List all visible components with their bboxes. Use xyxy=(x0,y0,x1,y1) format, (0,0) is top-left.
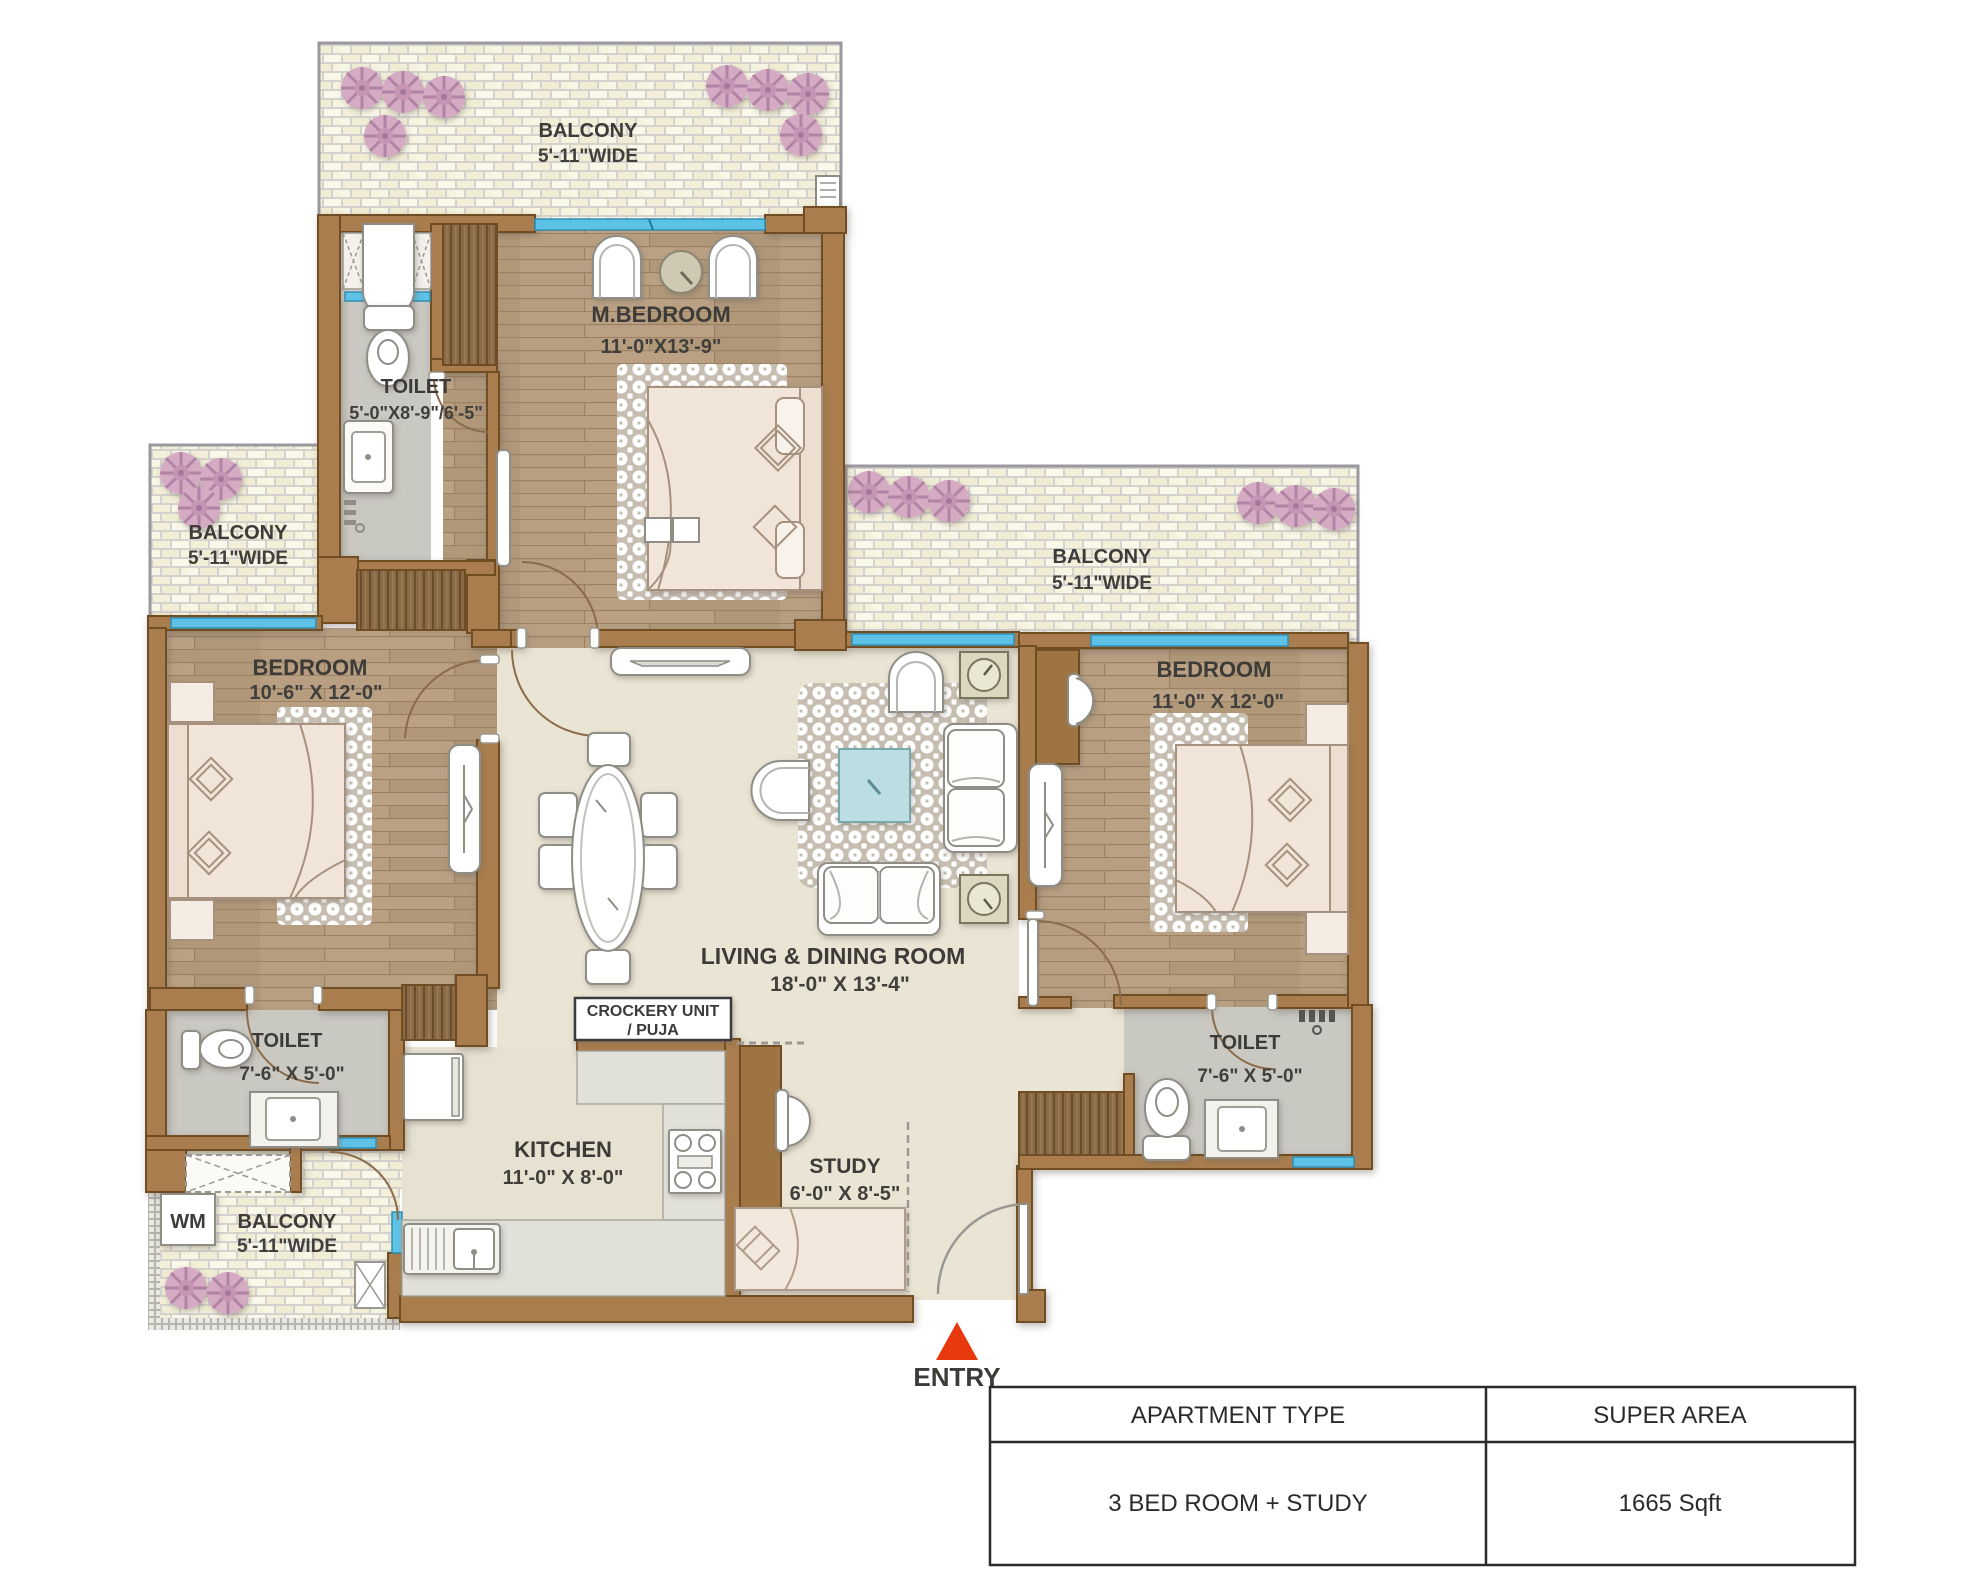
svg-text:BALCONY: BALCONY xyxy=(189,522,289,544)
svg-text:LIVING & DINING ROOM: LIVING & DINING ROOM xyxy=(701,943,966,969)
svg-text:BEDROOM: BEDROOM xyxy=(253,655,368,680)
svg-text:/ PUJA: / PUJA xyxy=(627,1022,679,1039)
svg-text:5'-0"X8'-9"/6'-5": 5'-0"X8'-9"/6'-5" xyxy=(349,403,483,423)
svg-text:APARTMENT TYPE: APARTMENT TYPE xyxy=(1131,1402,1345,1429)
svg-text:6'-0" X 8'-5": 6'-0" X 8'-5" xyxy=(790,1183,901,1205)
svg-text:CROCKERY UNIT: CROCKERY UNIT xyxy=(587,1003,720,1020)
svg-text:11'-0" X 12'-0": 11'-0" X 12'-0" xyxy=(1152,691,1284,713)
svg-text:5'-11"WIDE: 5'-11"WIDE xyxy=(237,1236,337,1257)
svg-text:TOILET: TOILET xyxy=(1210,1032,1281,1054)
svg-text:3 BED ROOM + STUDY: 3 BED ROOM + STUDY xyxy=(1108,1490,1367,1517)
svg-text:BALCONY: BALCONY xyxy=(1053,546,1153,568)
svg-text:10'-6" X 12'-0": 10'-6" X 12'-0" xyxy=(250,682,383,704)
svg-text:7'-6" X 5'-0": 7'-6" X 5'-0" xyxy=(239,1064,344,1085)
svg-text:TOILET: TOILET xyxy=(252,1030,323,1052)
svg-text:11'-0"X13'-9": 11'-0"X13'-9" xyxy=(601,336,722,358)
svg-text:M.BEDROOM: M.BEDROOM xyxy=(591,302,730,327)
svg-text:BALCONY: BALCONY xyxy=(539,120,639,142)
svg-text:WM: WM xyxy=(170,1211,206,1233)
svg-text:5'-11"WIDE: 5'-11"WIDE xyxy=(188,548,288,569)
svg-text:TOILET: TOILET xyxy=(381,376,452,398)
svg-text:SUPER AREA: SUPER AREA xyxy=(1593,1402,1746,1429)
svg-text:18'-0" X 13'-4": 18'-0" X 13'-4" xyxy=(770,973,910,996)
svg-text:5'-11"WIDE: 5'-11"WIDE xyxy=(1052,573,1152,594)
svg-text:BALCONY: BALCONY xyxy=(238,1211,338,1233)
svg-text:KITCHEN: KITCHEN xyxy=(514,1137,612,1162)
svg-text:1665 Sqft: 1665 Sqft xyxy=(1619,1490,1722,1517)
svg-text:5'-11"WIDE: 5'-11"WIDE xyxy=(538,146,638,167)
svg-text:11'-0" X 8'-0": 11'-0" X 8'-0" xyxy=(503,1167,624,1189)
svg-text:7'-6" X 5'-0": 7'-6" X 5'-0" xyxy=(1197,1066,1302,1087)
svg-text:BEDROOM: BEDROOM xyxy=(1157,657,1272,682)
svg-text:ENTRY: ENTRY xyxy=(913,1362,1000,1392)
svg-text:STUDY: STUDY xyxy=(809,1155,880,1178)
